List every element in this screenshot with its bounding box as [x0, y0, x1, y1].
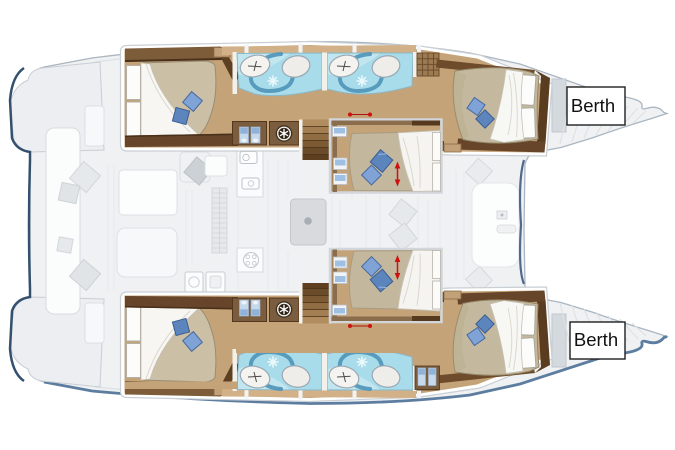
svg-text:Berth: Berth [574, 329, 618, 350]
svg-text:Berth: Berth [571, 95, 615, 116]
